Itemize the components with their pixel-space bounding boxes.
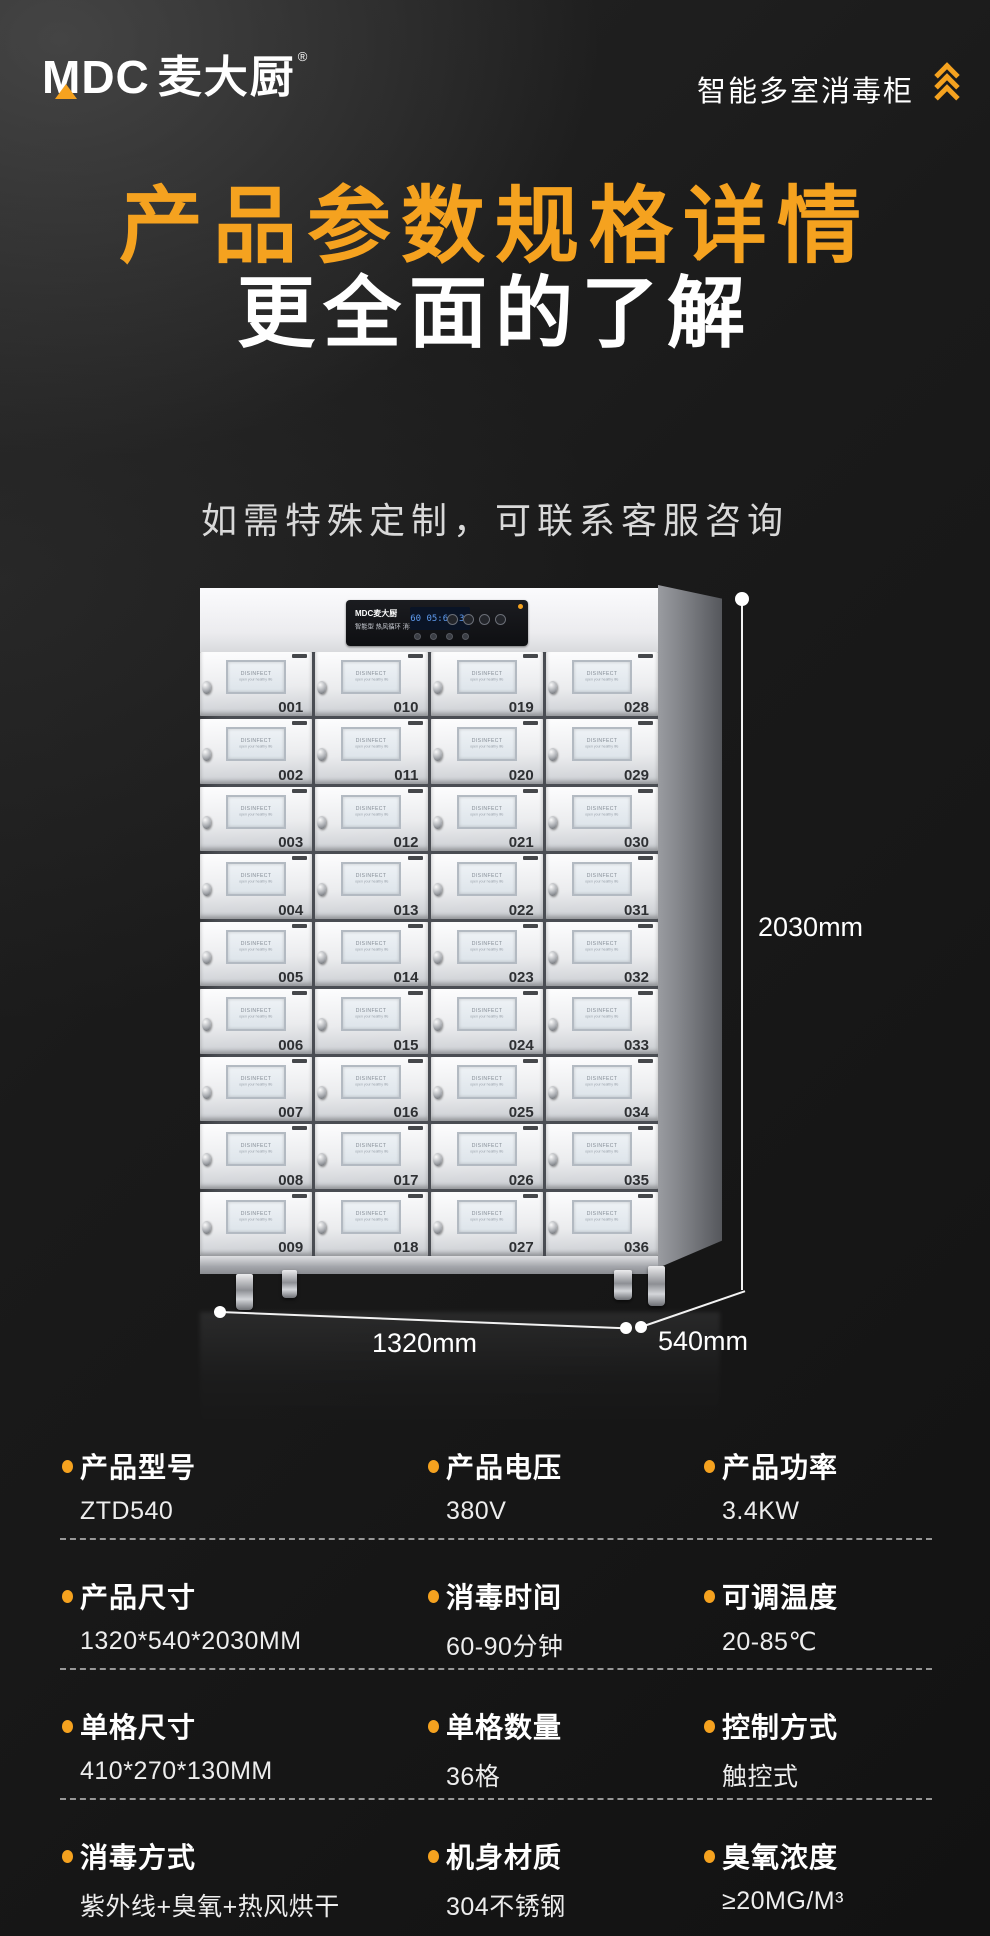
cabinet-door: DISINFECTopen your healthy life011	[315, 719, 427, 783]
spec-item: 产品功率3.4KW	[704, 1446, 838, 1526]
door-window-subtext: open your healthy life	[470, 1083, 503, 1087]
door-window: DISINFECTopen your healthy life	[457, 1200, 517, 1234]
bullet-icon	[428, 1460, 439, 1473]
door-handle-icon	[202, 883, 211, 896]
spec-row: 消毒方式紫外线+臭氧+热风烘干机身材质304不锈钢臭氧浓度≥20MG/M³	[0, 1830, 990, 1936]
door-window: DISINFECTopen your healthy life	[341, 1200, 401, 1234]
spec-label-text: 产品尺寸	[80, 1576, 196, 1616]
cabinet-foot	[282, 1270, 297, 1298]
door-latch-icon	[292, 1059, 307, 1063]
door-window: DISINFECTopen your healthy life	[226, 1132, 286, 1166]
door-number: 026	[509, 1172, 534, 1189]
door-window-subtext: open your healthy life	[355, 1083, 388, 1087]
bullet-icon	[428, 1720, 439, 1733]
door-window-text: DISINFECT	[241, 739, 272, 744]
door-number: 016	[393, 1104, 418, 1121]
door-latch-icon	[408, 1194, 423, 1198]
spec-value: 3.4KW	[722, 1497, 838, 1526]
door-number: 005	[278, 969, 303, 986]
door-window-subtext: open your healthy life	[470, 1150, 503, 1154]
door-window-text: DISINFECT	[586, 671, 617, 676]
door-window-subtext: open your healthy life	[585, 1083, 618, 1087]
door-number: 023	[509, 969, 534, 986]
door-window-text: DISINFECT	[471, 1076, 502, 1081]
door-latch-icon	[638, 924, 653, 928]
door-latch-icon	[408, 721, 423, 725]
door-latch-icon	[292, 1126, 307, 1130]
door-window: DISINFECTopen your healthy life	[341, 997, 401, 1031]
height-dimension-label: 2030mm	[758, 912, 863, 943]
door-window-subtext: open your healthy life	[239, 948, 272, 952]
door-window-text: DISINFECT	[586, 1009, 617, 1014]
cabinet-door: DISINFECTopen your healthy life025	[431, 1057, 543, 1121]
custom-service-note: 如需特殊定制，可联系客服咨询	[0, 492, 990, 544]
door-window: DISINFECTopen your healthy life	[457, 930, 517, 964]
door-handle-icon	[433, 816, 442, 829]
door-handle-icon	[202, 748, 211, 761]
door-window: DISINFECTopen your healthy life	[341, 930, 401, 964]
door-latch-icon	[638, 991, 653, 995]
door-number: 011	[394, 767, 418, 784]
spec-item: 可调温度20-85℃	[704, 1576, 838, 1657]
door-window-text: DISINFECT	[586, 739, 617, 744]
door-handle-icon	[202, 1221, 211, 1234]
door-number: 034	[624, 1104, 649, 1121]
door-window: DISINFECTopen your healthy life	[341, 1065, 401, 1099]
door-window-subtext: open your healthy life	[470, 745, 503, 749]
door-handle-icon	[433, 748, 442, 761]
spec-item: 单格尺寸410*270*130MM	[62, 1706, 273, 1786]
door-window-subtext: open your healthy life	[585, 745, 618, 749]
door-number: 002	[278, 767, 303, 784]
header-product-title: 智能多室消毒柜	[697, 68, 914, 110]
door-window: DISINFECTopen your healthy life	[572, 727, 632, 761]
spec-label: 单格数量	[428, 1706, 562, 1746]
door-window-subtext: open your healthy life	[585, 678, 618, 682]
door-window-subtext: open your healthy life	[585, 813, 618, 817]
spec-item: 控制方式触控式	[704, 1706, 838, 1793]
door-handle-icon	[202, 951, 211, 964]
door-latch-icon	[523, 721, 538, 725]
door-window-text: DISINFECT	[471, 1009, 502, 1014]
door-window: DISINFECTopen your healthy life	[226, 660, 286, 694]
panel-button-icon	[463, 614, 474, 625]
door-window-subtext: open your healthy life	[585, 1217, 618, 1221]
cabinet-door: DISINFECTopen your healthy life015	[315, 989, 427, 1053]
registered-mark: ®	[298, 50, 308, 63]
cabinet-door: DISINFECTopen your healthy life009	[200, 1192, 312, 1256]
bullet-icon	[428, 1590, 439, 1603]
door-handle-icon	[317, 1086, 326, 1099]
spec-row: 单格尺寸410*270*130MM单格数量36格控制方式触控式	[0, 1700, 990, 1830]
door-window-subtext: open your healthy life	[355, 948, 388, 952]
door-window: DISINFECTopen your healthy life	[457, 1132, 517, 1166]
door-window: DISINFECTopen your healthy life	[457, 997, 517, 1031]
door-handle-icon	[548, 883, 557, 896]
panel-button-icon	[447, 614, 458, 625]
door-window-text: DISINFECT	[586, 1144, 617, 1149]
door-window-subtext: open your healthy life	[470, 948, 503, 952]
door-handle-icon	[433, 681, 442, 694]
door-window: DISINFECTopen your healthy life	[457, 727, 517, 761]
cabinet-door: DISINFECTopen your healthy life022	[431, 854, 543, 918]
spec-value: 1320*540*2030MM	[80, 1627, 302, 1656]
door-latch-icon	[523, 1194, 538, 1198]
cabinet-door: DISINFECTopen your healthy life035	[546, 1124, 658, 1188]
door-window-subtext: open your healthy life	[355, 1150, 388, 1154]
door-handle-icon	[202, 681, 211, 694]
door-window: DISINFECTopen your healthy life	[457, 795, 517, 829]
door-handle-icon	[317, 816, 326, 829]
bullet-icon	[62, 1720, 73, 1733]
door-handle-icon	[548, 681, 557, 694]
door-window-text: DISINFECT	[356, 739, 387, 744]
cabinet-door: DISINFECTopen your healthy life013	[315, 854, 427, 918]
door-number: 014	[393, 969, 418, 986]
cabinet-foot	[236, 1274, 253, 1310]
door-window-text: DISINFECT	[356, 1076, 387, 1081]
door-latch-icon	[292, 856, 307, 860]
door-latch-icon	[638, 856, 653, 860]
cabinet-door: DISINFECTopen your healthy life012	[315, 787, 427, 851]
door-handle-icon	[548, 748, 557, 761]
door-window: DISINFECTopen your healthy life	[457, 862, 517, 896]
door-handle-icon	[317, 681, 326, 694]
door-window-text: DISINFECT	[241, 1076, 272, 1081]
cabinet-door: DISINFECTopen your healthy life033	[546, 989, 658, 1053]
door-handle-icon	[202, 1086, 211, 1099]
door-latch-icon	[523, 856, 538, 860]
door-number: 006	[278, 1037, 303, 1054]
triple-chevron-up-icon	[936, 66, 958, 106]
door-window: DISINFECTopen your healthy life	[457, 1065, 517, 1099]
door-latch-icon	[523, 1126, 538, 1130]
door-window-subtext: open your healthy life	[470, 880, 503, 884]
cabinet-door: DISINFECTopen your healthy life023	[431, 922, 543, 986]
door-latch-icon	[408, 789, 423, 793]
spec-item: 臭氧浓度≥20MG/M³	[704, 1836, 844, 1916]
panel-buttons	[447, 614, 506, 625]
door-window-text: DISINFECT	[241, 671, 272, 676]
spec-label-text: 机身材质	[446, 1836, 562, 1876]
door-window-subtext: open your healthy life	[355, 678, 388, 682]
door-handle-icon	[433, 883, 442, 896]
door-number: 013	[393, 902, 418, 919]
door-window: DISINFECTopen your healthy life	[572, 660, 632, 694]
door-latch-icon	[523, 924, 538, 928]
door-number: 028	[624, 699, 649, 716]
door-window-subtext: open your healthy life	[470, 1217, 503, 1221]
spec-label: 机身材质	[428, 1836, 566, 1876]
cabinet-door: DISINFECTopen your healthy life008	[200, 1124, 312, 1188]
door-grid: DISINFECTopen your healthy life001DISINF…	[200, 652, 658, 1256]
door-window-text: DISINFECT	[241, 1009, 272, 1014]
door-window-text: DISINFECT	[356, 1144, 387, 1149]
spec-label: 单格尺寸	[62, 1706, 273, 1746]
page-subtitle: 更全面的了解	[0, 274, 990, 352]
door-latch-icon	[523, 789, 538, 793]
brand-logo-mdc: MDC	[42, 54, 150, 100]
door-latch-icon	[523, 1059, 538, 1063]
cabinet-side-face	[658, 585, 722, 1268]
cabinet-foot	[614, 1270, 632, 1300]
door-window: DISINFECTopen your healthy life	[226, 1200, 286, 1234]
door-window-subtext: open your healthy life	[239, 1150, 272, 1154]
door-window-text: DISINFECT	[241, 1211, 272, 1216]
door-handle-icon	[433, 1086, 442, 1099]
dimension-endpoint-dot	[620, 1322, 632, 1334]
bullet-icon	[62, 1850, 73, 1863]
door-window-subtext: open your healthy life	[470, 813, 503, 817]
door-window-text: DISINFECT	[471, 874, 502, 879]
door-window-text: DISINFECT	[471, 941, 502, 946]
page-title: 产品参数规格详情	[0, 184, 990, 268]
door-number: 001	[278, 699, 303, 716]
door-number: 031	[624, 902, 649, 919]
bullet-icon	[62, 1460, 73, 1473]
cabinet-door: DISINFECTopen your healthy life018	[315, 1192, 427, 1256]
door-window-text: DISINFECT	[586, 1076, 617, 1081]
door-latch-icon	[292, 789, 307, 793]
door-window-subtext: open your healthy life	[470, 678, 503, 682]
door-window-text: DISINFECT	[241, 941, 272, 946]
door-latch-icon	[638, 1126, 653, 1130]
door-handle-icon	[548, 1153, 557, 1166]
brand-logo: MDC 麦大厨 ®	[42, 54, 307, 100]
spec-label: 臭氧浓度	[704, 1836, 844, 1876]
door-window-subtext: open your healthy life	[355, 745, 388, 749]
door-window: DISINFECTopen your healthy life	[572, 1132, 632, 1166]
door-handle-icon	[433, 951, 442, 964]
door-handle-icon	[317, 1018, 326, 1031]
cabinet-door: DISINFECTopen your healthy life002	[200, 719, 312, 783]
door-number: 009	[278, 1239, 303, 1256]
dimension-endpoint-dot	[635, 1321, 647, 1333]
door-latch-icon	[292, 924, 307, 928]
door-number: 015	[393, 1037, 418, 1054]
cabinet-door: DISINFECTopen your healthy life007	[200, 1057, 312, 1121]
logo-triangle-icon	[55, 84, 77, 99]
panel-power-led	[518, 604, 523, 609]
spec-value: ≥20MG/M³	[722, 1887, 844, 1916]
door-window-text: DISINFECT	[586, 874, 617, 879]
door-latch-icon	[408, 856, 423, 860]
door-number: 033	[624, 1037, 649, 1054]
door-window-subtext: open your healthy life	[585, 948, 618, 952]
spec-value: 380V	[446, 1497, 562, 1526]
height-dimension-line	[741, 598, 743, 1290]
cabinet-door: DISINFECTopen your healthy life003	[200, 787, 312, 851]
bullet-icon	[704, 1590, 715, 1603]
door-window: DISINFECTopen your healthy life	[572, 930, 632, 964]
bullet-icon	[704, 1460, 715, 1473]
spec-label-text: 可调温度	[722, 1576, 838, 1616]
dashed-divider	[60, 1538, 932, 1540]
door-number: 018	[393, 1239, 418, 1256]
door-latch-icon	[408, 991, 423, 995]
door-window-subtext: open your healthy life	[585, 1015, 618, 1019]
door-window-subtext: open your healthy life	[355, 813, 388, 817]
cabinet-foot	[648, 1266, 665, 1306]
door-handle-icon	[202, 816, 211, 829]
door-number: 036	[624, 1239, 649, 1256]
cabinet-door: DISINFECTopen your healthy life030	[546, 787, 658, 851]
panel-button-icon	[495, 614, 506, 625]
bullet-icon	[704, 1720, 715, 1733]
spec-value: ZTD540	[80, 1497, 196, 1526]
spec-label-text: 产品型号	[80, 1446, 196, 1486]
cabinet-door: DISINFECTopen your healthy life019	[431, 652, 543, 716]
door-handle-icon	[317, 1221, 326, 1234]
bullet-icon	[428, 1850, 439, 1863]
door-latch-icon	[408, 1059, 423, 1063]
door-window-text: DISINFECT	[356, 806, 387, 811]
spec-row: 产品尺寸1320*540*2030MM消毒时间60-90分钟可调温度20-85℃	[0, 1570, 990, 1700]
spec-label-text: 单格尺寸	[80, 1706, 196, 1746]
cabinet-base	[200, 1256, 658, 1274]
cabinet-door: DISINFECTopen your healthy life006	[200, 989, 312, 1053]
spec-value: 60-90分钟	[446, 1627, 563, 1663]
door-window-text: DISINFECT	[356, 941, 387, 946]
spec-item: 消毒方式紫外线+臭氧+热风烘干	[62, 1836, 340, 1923]
door-window: DISINFECTopen your healthy life	[572, 1065, 632, 1099]
door-window-text: DISINFECT	[356, 1211, 387, 1216]
cabinet-door: DISINFECTopen your healthy life028	[546, 652, 658, 716]
door-number: 008	[278, 1172, 303, 1189]
door-latch-icon	[638, 654, 653, 658]
door-latch-icon	[638, 789, 653, 793]
door-number: 019	[509, 699, 534, 716]
door-latch-icon	[638, 1194, 653, 1198]
door-handle-icon	[317, 951, 326, 964]
door-handle-icon	[433, 1018, 442, 1031]
door-number: 021	[509, 834, 534, 851]
door-window: DISINFECTopen your healthy life	[457, 660, 517, 694]
spec-value: 304不锈钢	[446, 1887, 566, 1923]
panel-key-icon	[414, 633, 421, 640]
door-window: DISINFECTopen your healthy life	[341, 660, 401, 694]
panel-key-icon	[446, 633, 453, 640]
door-window-text: DISINFECT	[471, 806, 502, 811]
door-latch-icon	[408, 1126, 423, 1130]
spec-label-text: 消毒时间	[446, 1576, 562, 1616]
door-window: DISINFECTopen your healthy life	[226, 1065, 286, 1099]
door-number: 027	[509, 1239, 534, 1256]
spec-value: 紫外线+臭氧+热风烘干	[80, 1887, 340, 1923]
door-window: DISINFECTopen your healthy life	[572, 1200, 632, 1234]
door-window: DISINFECTopen your healthy life	[341, 727, 401, 761]
cabinet-door: DISINFECTopen your healthy life014	[315, 922, 427, 986]
spec-label-text: 产品电压	[446, 1446, 562, 1486]
panel-button-icon	[479, 614, 490, 625]
door-latch-icon	[523, 991, 538, 995]
spec-label-text: 产品功率	[722, 1446, 838, 1486]
door-number: 012	[393, 834, 418, 851]
spec-value: 36格	[446, 1757, 562, 1793]
door-window-subtext: open your healthy life	[239, 880, 272, 884]
spec-item: 产品电压380V	[428, 1446, 562, 1526]
cabinet-door: DISINFECTopen your healthy life001	[200, 652, 312, 716]
door-latch-icon	[408, 654, 423, 658]
cabinet-door: DISINFECTopen your healthy life032	[546, 922, 658, 986]
door-latch-icon	[638, 1059, 653, 1063]
spec-label: 产品尺寸	[62, 1576, 302, 1616]
door-handle-icon	[317, 883, 326, 896]
dashed-divider	[60, 1798, 932, 1800]
specs-section: 产品型号ZTD540产品电压380V产品功率3.4KW产品尺寸1320*540*…	[0, 1440, 990, 1936]
spec-item: 机身材质304不锈钢	[428, 1836, 566, 1923]
door-window-subtext: open your healthy life	[355, 880, 388, 884]
depth-dimension-label: 540mm	[658, 1326, 748, 1357]
door-window: DISINFECTopen your healthy life	[226, 997, 286, 1031]
door-number: 022	[509, 902, 534, 919]
door-window-subtext: open your healthy life	[470, 1015, 503, 1019]
door-window-text: DISINFECT	[241, 874, 272, 879]
door-window-text: DISINFECT	[586, 1211, 617, 1216]
door-window-subtext: open your healthy life	[239, 813, 272, 817]
door-handle-icon	[202, 1153, 211, 1166]
door-handle-icon	[548, 816, 557, 829]
door-number: 004	[278, 902, 303, 919]
spec-label: 可调温度	[704, 1576, 838, 1616]
bullet-icon	[704, 1850, 715, 1863]
door-window: DISINFECTopen your healthy life	[341, 862, 401, 896]
door-handle-icon	[548, 1018, 557, 1031]
door-latch-icon	[292, 1194, 307, 1198]
door-handle-icon	[433, 1221, 442, 1234]
cabinet-door: DISINFECTopen your healthy life017	[315, 1124, 427, 1188]
door-window: DISINFECTopen your healthy life	[572, 997, 632, 1031]
brand-logo-cn: 麦大厨	[158, 56, 296, 100]
spec-value: 触控式	[722, 1757, 838, 1793]
door-window-subtext: open your healthy life	[239, 1217, 272, 1221]
spec-label-text: 单格数量	[446, 1706, 562, 1746]
spec-item: 产品型号ZTD540	[62, 1446, 196, 1526]
door-window-text: DISINFECT	[356, 1009, 387, 1014]
door-number: 029	[624, 767, 649, 784]
door-latch-icon	[292, 991, 307, 995]
door-window: DISINFECTopen your healthy life	[341, 795, 401, 829]
door-latch-icon	[408, 924, 423, 928]
door-window-text: DISINFECT	[356, 671, 387, 676]
door-window: DISINFECTopen your healthy life	[572, 862, 632, 896]
door-number: 024	[509, 1037, 534, 1054]
door-window-subtext: open your healthy life	[355, 1217, 388, 1221]
door-window-text: DISINFECT	[356, 874, 387, 879]
spec-item: 产品尺寸1320*540*2030MM	[62, 1576, 302, 1656]
spec-label: 控制方式	[704, 1706, 838, 1746]
door-number: 017	[393, 1172, 418, 1189]
door-number: 030	[624, 834, 649, 851]
dimension-endpoint-dot	[214, 1306, 226, 1318]
spec-label-text: 臭氧浓度	[722, 1836, 838, 1876]
cabinet-door: DISINFECTopen your healthy life021	[431, 787, 543, 851]
door-window-subtext: open your healthy life	[585, 1150, 618, 1154]
door-latch-icon	[292, 654, 307, 658]
door-window-text: DISINFECT	[471, 1211, 502, 1216]
door-window-text: DISINFECT	[471, 1144, 502, 1149]
door-number: 007	[278, 1104, 303, 1121]
panel-brand-text: MDC麦大厨	[355, 608, 397, 619]
cabinet-door: DISINFECTopen your healthy life026	[431, 1124, 543, 1188]
spec-row: 产品型号ZTD540产品电压380V产品功率3.4KW	[0, 1440, 990, 1570]
width-dimension-label: 1320mm	[372, 1328, 477, 1359]
door-number: 025	[509, 1104, 534, 1121]
door-number: 003	[278, 834, 303, 851]
door-window: DISINFECTopen your healthy life	[572, 795, 632, 829]
cabinet-door: DISINFECTopen your healthy life031	[546, 854, 658, 918]
cabinet-door: DISINFECTopen your healthy life016	[315, 1057, 427, 1121]
